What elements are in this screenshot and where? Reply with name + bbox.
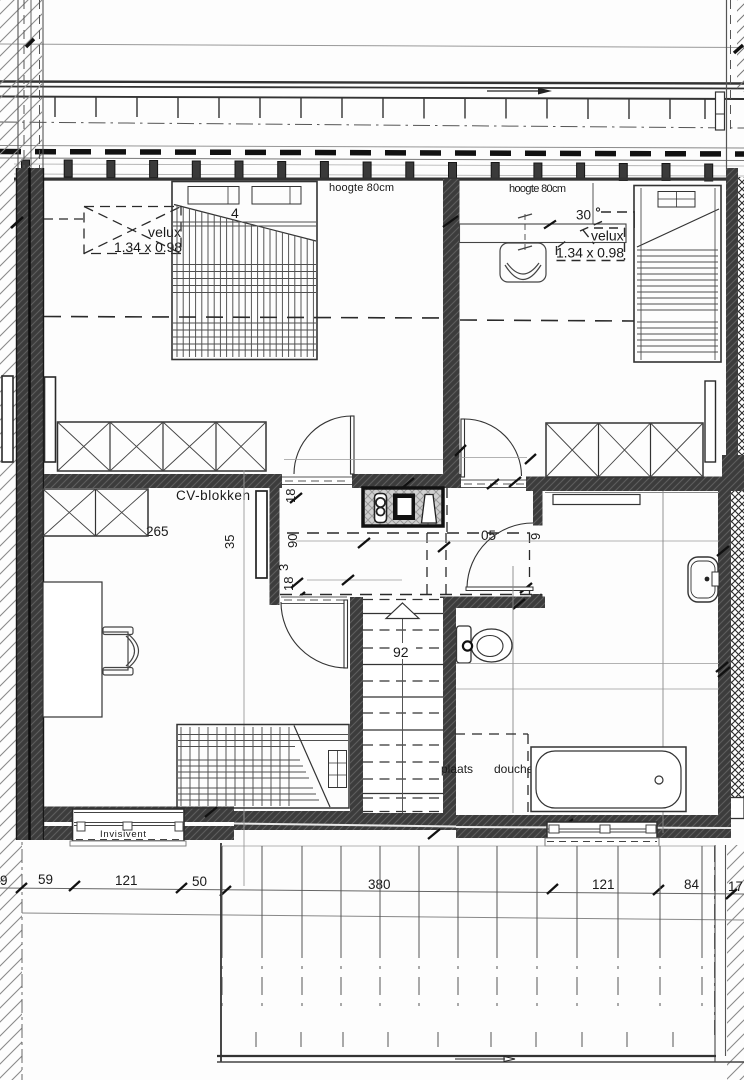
svg-text:35: 35 xyxy=(222,535,237,549)
svg-text:90: 90 xyxy=(285,534,300,548)
svg-text:CV-blokken: CV-blokken xyxy=(176,488,250,503)
svg-text:1.34 x 0.98: 1.34 x 0.98 xyxy=(556,245,624,261)
svg-text:plaats: plaats xyxy=(441,762,473,776)
svg-text:265: 265 xyxy=(146,524,169,539)
svg-text:30: 30 xyxy=(576,208,591,223)
svg-text:18: 18 xyxy=(281,577,296,591)
svg-text:84: 84 xyxy=(684,877,700,892)
svg-text:121: 121 xyxy=(115,873,138,888)
svg-text:Invisivent: Invisivent xyxy=(100,829,146,840)
svg-text:4: 4 xyxy=(231,205,239,221)
svg-text:velux: velux xyxy=(591,228,624,244)
svg-text:18: 18 xyxy=(283,489,298,503)
svg-text:hoogte 80cm: hoogte 80cm xyxy=(509,183,566,195)
svg-text:9: 9 xyxy=(0,873,8,888)
svg-text:121: 121 xyxy=(592,877,615,892)
svg-text:3: 3 xyxy=(276,564,291,571)
svg-text:douche: douche xyxy=(494,762,534,776)
svg-text:hoogte 80cm: hoogte 80cm xyxy=(329,182,394,194)
svg-text:380: 380 xyxy=(368,877,391,892)
svg-text:9: 9 xyxy=(528,533,543,540)
svg-text:50: 50 xyxy=(192,874,207,889)
svg-text:59: 59 xyxy=(38,872,53,887)
svg-text:92: 92 xyxy=(393,644,409,660)
